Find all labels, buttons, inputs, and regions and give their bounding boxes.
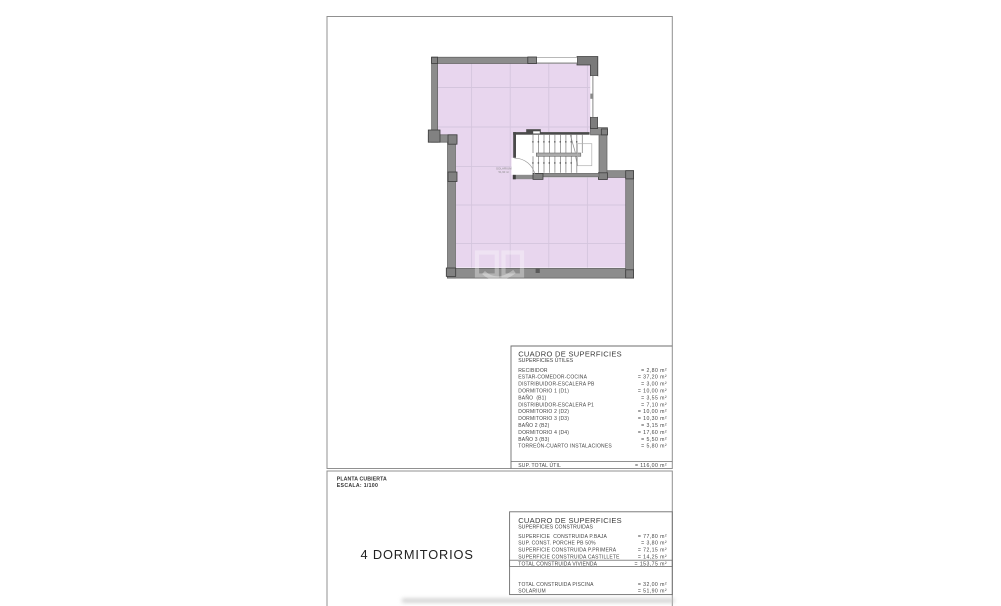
svg-text:DORMITORIO 4 (D4): DORMITORIO 4 (D4) [518, 430, 569, 436]
svg-text:TOTAL CONSTRUIDA VIVIENDA: TOTAL CONSTRUIDA VIVIENDA [518, 561, 597, 567]
svg-text:4 DORMITORIOS: 4 DORMITORIOS [361, 547, 474, 562]
svg-text:= 5,50 m²: = 5,50 m² [641, 437, 667, 443]
svg-text:ESTAR-COMEDOR-COCINA: ESTAR-COMEDOR-COCINA [518, 375, 587, 381]
svg-text:= 2,80 m²: = 2,80 m² [641, 368, 667, 374]
svg-text:DISTRIBUIDOR-ESCALERA P1: DISTRIBUIDOR-ESCALERA P1 [518, 402, 594, 408]
svg-text:BAÑO 3 (B3): BAÑO 3 (B3) [518, 436, 549, 443]
svg-text:= 116,00 m²: = 116,00 m² [635, 463, 667, 469]
svg-text:= 14,25 m²: = 14,25 m² [638, 554, 667, 560]
svg-text:= 32,00 m²: = 32,00 m² [638, 582, 667, 588]
svg-text:TOTAL CONSTRUIDA PISCINA: TOTAL CONSTRUIDA PISCINA [518, 582, 594, 588]
svg-text:= 37,20 m²: = 37,20 m² [638, 375, 667, 381]
svg-text:SUP. TOTAL ÚTIL: SUP. TOTAL ÚTIL [518, 462, 561, 469]
svg-text:= 10,30 m²: = 10,30 m² [638, 416, 667, 422]
svg-text:51,90 m²: 51,90 m² [499, 170, 510, 174]
svg-text:= 10,00 m²: = 10,00 m² [638, 389, 667, 395]
svg-text:DORMITORIO 3 (D3): DORMITORIO 3 (D3) [518, 416, 569, 422]
svg-text:DORMITORIO 2 (D2): DORMITORIO 2 (D2) [518, 409, 569, 415]
svg-text:SUPERFICIE CONSTRUIDA P.PRIMER: SUPERFICIE CONSTRUIDA P.PRIMERA [518, 548, 616, 554]
svg-text:DISTRIBUIDOR-ESCALERA PB: DISTRIBUIDOR-ESCALERA PB [518, 382, 595, 388]
svg-text:ESCALA: 1/100: ESCALA: 1/100 [337, 483, 378, 489]
svg-text:= 3,15 m²: = 3,15 m² [641, 423, 667, 429]
svg-text:= 3,80 m²: = 3,80 m² [641, 541, 667, 547]
svg-text:DORMITORIO 1 (D1): DORMITORIO 1 (D1) [518, 389, 569, 395]
svg-text:= 72,15 m²: = 72,15 m² [638, 548, 667, 554]
svg-text:RECIBIDOR: RECIBIDOR [518, 368, 548, 374]
svg-text:SUPERFICIE CONSTRUIDA P.BAJA: SUPERFICIE CONSTRUIDA P.BAJA [518, 534, 607, 540]
svg-text:= 3,00 m²: = 3,00 m² [641, 382, 667, 388]
svg-text:SUPERFICIES CONSTRUIDAS: SUPERFICIES CONSTRUIDAS [518, 524, 593, 530]
svg-text:= 7,10 m²: = 7,10 m² [641, 402, 667, 408]
svg-text:= 77,80 m²: = 77,80 m² [638, 534, 667, 540]
svg-text:PLANTA CUBIERTA: PLANTA CUBIERTA [337, 476, 387, 482]
svg-text:SUP. CONST. PORCHE PB 50%: SUP. CONST. PORCHE PB 50% [518, 541, 596, 547]
svg-text:= 17,60 m²: = 17,60 m² [638, 430, 667, 436]
svg-text:= 10,00 m²: = 10,00 m² [638, 409, 667, 415]
svg-text:= 153,75 m²: = 153,75 m² [635, 561, 667, 567]
svg-text:SUPERFICIE CONSTRUIDA CASTILLE: SUPERFICIE CONSTRUIDA CASTILLETE [518, 554, 620, 560]
svg-text:= 51,90 m²: = 51,90 m² [638, 589, 667, 595]
svg-text:SOLARIUM: SOLARIUM [518, 589, 546, 595]
svg-text:BAÑO 2 (B2): BAÑO 2 (B2) [518, 422, 549, 429]
svg-text:BAÑO (B1): BAÑO (B1) [518, 394, 546, 401]
svg-text:= 3,55 m²: = 3,55 m² [641, 395, 667, 401]
svg-text:TORREÓN-CUARTO INSTALACIONES: TORREÓN-CUARTO INSTALACIONES [518, 443, 612, 450]
svg-text:= 5,80 m²: = 5,80 m² [641, 444, 667, 450]
svg-text:SUPERFICIES ÚTILES: SUPERFICIES ÚTILES [518, 357, 574, 364]
